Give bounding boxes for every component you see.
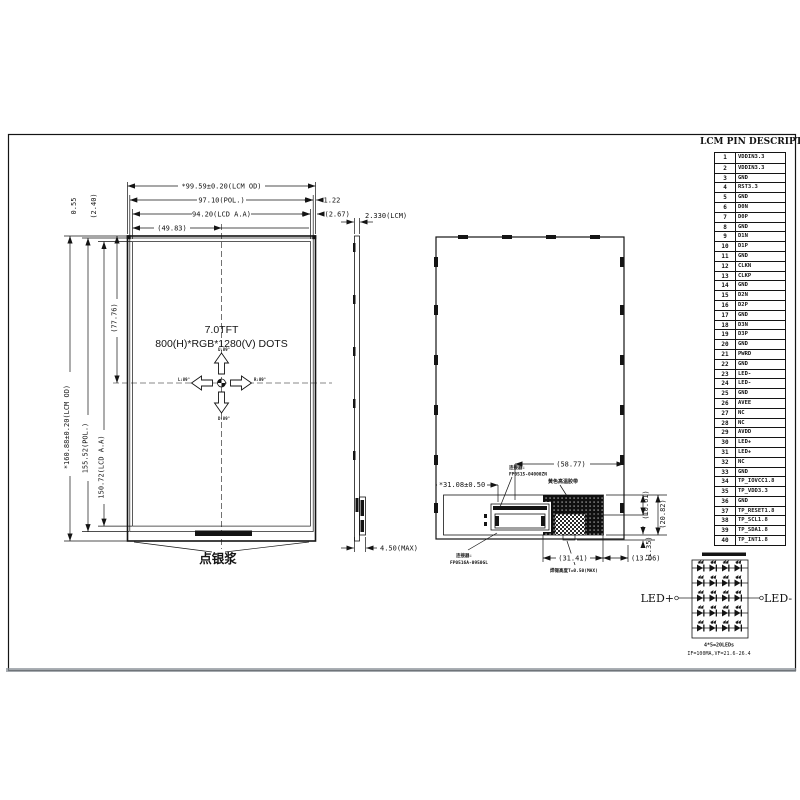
- pin-row: 25GND: [715, 388, 785, 398]
- left-arrow-icon: [192, 376, 213, 390]
- pin-number: 16: [715, 301, 736, 310]
- pin-number: 32: [715, 458, 736, 467]
- pin-name: CLKN: [736, 262, 785, 271]
- pin-row: 32NC: [715, 457, 785, 467]
- pin-number: 5: [715, 193, 736, 202]
- dim-height-aa: 150.72(LCD A.A): [98, 435, 106, 498]
- led-icon: [697, 575, 705, 586]
- pin-name: D3P: [736, 330, 785, 339]
- led-icon: [697, 605, 705, 616]
- pin-name: D2P: [736, 301, 785, 310]
- led-grid: [692, 560, 748, 631]
- pin-row: 4RST3.3: [715, 182, 785, 192]
- leader-line: [560, 485, 567, 496]
- panel-size-label: 7.0TFT: [205, 324, 239, 336]
- led-icon: [735, 605, 743, 616]
- led-icon: [697, 590, 705, 601]
- pin-name: LED+: [736, 448, 785, 457]
- pin-number: 36: [715, 497, 736, 506]
- pin-row: 6D0N: [715, 202, 785, 212]
- pin-name: D1N: [736, 232, 785, 241]
- dim-max-thickness: 4.50(MAX): [380, 545, 418, 553]
- connector-top-label: 连接器:: [509, 464, 525, 471]
- pin-number: 27: [715, 409, 736, 418]
- pin-number: 30: [715, 438, 736, 447]
- led-icon: [710, 605, 718, 616]
- pin-row: 1VDDIN3.3: [715, 153, 785, 163]
- dim-top-aa-gap: (2.40): [90, 193, 98, 218]
- pin-row: 2VDDIN3.3: [715, 163, 785, 173]
- led-icon: [710, 620, 718, 631]
- pin-row: 23LED-: [715, 369, 785, 379]
- pin-row: 36GND: [715, 496, 785, 506]
- leader-line: [468, 533, 497, 550]
- pin-name: D2N: [736, 291, 785, 300]
- pin-name: TP_SDA1.8: [736, 526, 785, 535]
- pin-name: TP_INT1.8: [736, 536, 785, 545]
- led-icon: [735, 590, 743, 601]
- pin-number: 3: [715, 174, 736, 183]
- pin-row: 8GND: [715, 222, 785, 232]
- pin-row: 24LED-: [715, 378, 785, 388]
- pin-row: 37TP_RESET1.8: [715, 506, 785, 516]
- pin-number: 8: [715, 223, 736, 232]
- pin-number: 19: [715, 330, 736, 339]
- solder-height-label: 焊锡高度T=0.50(MAX): [550, 567, 598, 574]
- pin-name: GND: [736, 311, 785, 320]
- pin-row: 11GND: [715, 251, 785, 261]
- pin-number: 26: [715, 399, 736, 408]
- pin-row: 27NC: [715, 408, 785, 418]
- pin-number: 29: [715, 428, 736, 437]
- pin-row: 22GND: [715, 359, 785, 369]
- led-icon: [722, 590, 730, 601]
- pin-row: 21PWRD: [715, 349, 785, 359]
- pin-name: GND: [736, 360, 785, 369]
- connector-top-part: FP0515-04000ZN: [509, 472, 547, 478]
- pin-number: 2: [715, 164, 736, 173]
- sheet-bottom-band: [6, 668, 796, 672]
- pin-name: GND: [736, 252, 785, 261]
- led-count-label: 4*5=20LEDs: [704, 643, 734, 649]
- dim-width-od: *99.59±0.20(LCM OD): [181, 183, 261, 191]
- pin-name: TP_IOVCC1.8: [736, 477, 785, 486]
- led-icon: [697, 560, 705, 571]
- dim-10-61: (10.61): [642, 490, 650, 520]
- led-icon: [735, 575, 743, 586]
- led-icon: [710, 560, 718, 571]
- pin-row: 31LED+: [715, 447, 785, 457]
- pin-row: 19D3P: [715, 329, 785, 339]
- pin-name: AVEE: [736, 399, 785, 408]
- pin-number: 13: [715, 272, 736, 281]
- side-profile: [355, 236, 360, 541]
- resolution-label: 800(H)*RGB*1280(V) DOTS: [155, 338, 287, 350]
- led-icon: [722, 620, 730, 631]
- angle-down-label: D:89°: [218, 416, 230, 421]
- right-arrow-icon: [231, 376, 252, 390]
- pin-number: 21: [715, 350, 736, 359]
- pin-name: GND: [736, 193, 785, 202]
- pin-name: NC: [736, 409, 785, 418]
- pin-number: 1: [715, 153, 736, 163]
- led-plus-terminal-label: LED+: [641, 592, 674, 605]
- pin-row: 30LED+: [715, 437, 785, 447]
- dim-fpc-offset: (58.77): [556, 461, 586, 469]
- led-icon: [722, 575, 730, 586]
- pin-row: 33GND: [715, 467, 785, 477]
- drawing-svg: U:89° D:89° L:89° R:89° 7.0TFT 800(H)*RG…: [0, 0, 800, 800]
- touch-fpc-pad: [555, 514, 585, 535]
- dim-13-06: (13.06): [631, 555, 661, 563]
- datasheet-canvas: U:89° D:89° L:89° R:89° 7.0TFT 800(H)*RG…: [0, 0, 800, 800]
- pin-name: GND: [736, 281, 785, 290]
- pin-name: NC: [736, 419, 785, 428]
- pin-number: 34: [715, 477, 736, 486]
- up-arrow-icon: [215, 353, 229, 374]
- pin-number: 39: [715, 526, 736, 535]
- pin-name: D0N: [736, 203, 785, 212]
- angle-left-label: L:89°: [178, 377, 190, 382]
- dim-height-od: *160.88±0.20(LCM OD): [63, 385, 71, 469]
- pin-number: 12: [715, 262, 736, 271]
- pin-row: 3GND: [715, 173, 785, 183]
- pin-name: GND: [736, 497, 785, 506]
- pin-number: 18: [715, 321, 736, 330]
- pin-number: 14: [715, 281, 736, 290]
- led-icon: [735, 560, 743, 571]
- pin-name: D0P: [736, 213, 785, 222]
- pin-row: 13CLKP: [715, 271, 785, 281]
- pin-row: 39TP_SDA1.8: [715, 525, 785, 535]
- leader-line: [225, 542, 309, 552]
- pin-number: 22: [715, 360, 736, 369]
- dim-20-82: (20.82): [659, 499, 667, 529]
- pin-number: 7: [715, 213, 736, 222]
- back-outline: [436, 237, 624, 539]
- led-icon: [697, 620, 705, 631]
- pin-number: 17: [715, 311, 736, 320]
- led-minus-terminal-label: LED-: [764, 592, 792, 605]
- pin-row: 34TP_IOVCC1.8: [715, 476, 785, 486]
- led-icon: [710, 575, 718, 586]
- dim-width-half: (49.83): [157, 225, 187, 233]
- led-spec-label: IF=100MA,VF=21.6-26.4: [687, 651, 750, 657]
- dim-thickness: 2.330(LCM): [365, 212, 407, 220]
- dim-height-pol: 155.52(POL.): [82, 423, 90, 474]
- pin-row: 16D2P: [715, 300, 785, 310]
- pin-row: 28NC: [715, 418, 785, 428]
- center-mark-quadrant: [218, 379, 222, 383]
- pin-table-body: 1VDDIN3.32VDDIN3.33GND4RST3.35GND6D0N7D0…: [715, 153, 785, 545]
- pin-name: GND: [736, 389, 785, 398]
- pin-row: 5GND: [715, 192, 785, 202]
- dim-31-41: (31.41): [558, 555, 588, 563]
- viewing-direction-symbol: U:89° D:89° L:89° R:89°: [178, 347, 266, 421]
- down-arrow-icon: [215, 392, 229, 413]
- side-view: 2.330(LCM) 4.50(MAX): [341, 212, 418, 553]
- pin-number: 10: [715, 242, 736, 251]
- pin-name: D3N: [736, 321, 785, 330]
- pin-row: 26AVEE: [715, 398, 785, 408]
- pin-row: 29AVDD: [715, 427, 785, 437]
- pin-row: 38TP_SCL1.8: [715, 515, 785, 525]
- pin-name: PWRD: [736, 350, 785, 359]
- pin-number: 6: [715, 203, 736, 212]
- back-view: (58.77) *31.08±0.50 连接器: FP0515-04000ZN …: [434, 235, 667, 574]
- tape-label: 黄色高温胶带: [548, 478, 578, 485]
- front-view: U:89° D:89° L:89° R:89° 7.0TFT 800(H)*RG…: [63, 182, 350, 566]
- led-icon: [710, 590, 718, 601]
- pin-name: TP_SCL1.8: [736, 516, 785, 525]
- led-circuit-diagram: LED+ LED- 4*5=20LEDs IF=100MA,VF=21.6-26…: [641, 553, 793, 658]
- pin-number: 38: [715, 516, 736, 525]
- pin-number: 23: [715, 370, 736, 379]
- dim-right-aa-gap: (2.67): [325, 211, 350, 219]
- silver-paste-label: 点银浆: [199, 551, 237, 566]
- connector-bottom-part: FP0516A-0950GL: [450, 560, 488, 566]
- connector: [484, 502, 551, 532]
- pin-number: 9: [715, 232, 736, 241]
- pin-number: 37: [715, 507, 736, 516]
- pin-number: 33: [715, 468, 736, 477]
- dim-fpc-width: *31.08±0.50: [439, 481, 485, 489]
- pin-number: 11: [715, 252, 736, 261]
- pin-name: AVDD: [736, 428, 785, 437]
- led-top-bar: [702, 553, 746, 557]
- pin-number: 35: [715, 487, 736, 496]
- pin-row: 12CLKN: [715, 261, 785, 271]
- pin-name: GND: [736, 468, 785, 477]
- dim-right-pol-gap: 1.22: [324, 197, 341, 205]
- pin-number: 4: [715, 183, 736, 192]
- pin-row: 14GND: [715, 280, 785, 290]
- pin-row: 10D1P: [715, 241, 785, 251]
- pin-table-title: LCM PIN DESCRIPTION: [700, 137, 796, 147]
- pin-number: 15: [715, 291, 736, 300]
- dim-height-half: (77.76): [111, 303, 119, 333]
- terminal-node-icon: [760, 596, 764, 600]
- pin-name: LED+: [736, 438, 785, 447]
- pin-name: CLKP: [736, 272, 785, 281]
- pin-number: 20: [715, 340, 736, 349]
- pin-row: 40TP_INT1.8: [715, 535, 785, 545]
- pin-row: 15D2N: [715, 290, 785, 300]
- pin-name: LED-: [736, 379, 785, 388]
- pin-name: VDDIN3.3: [736, 164, 785, 173]
- pin-number: 25: [715, 389, 736, 398]
- fpc-bond-bar: [195, 531, 252, 537]
- pin-row: 17GND: [715, 310, 785, 320]
- center-mark-quadrant: [222, 383, 226, 387]
- terminal-node-icon: [675, 596, 679, 600]
- leader-line: [134, 542, 212, 552]
- pin-row: 7D0P: [715, 212, 785, 222]
- pin-row: 20GND: [715, 339, 785, 349]
- dim-width-aa: 94.20(LCD A.A): [192, 211, 251, 219]
- led-icon: [722, 605, 730, 616]
- led-icon: [722, 560, 730, 571]
- pin-table: 1VDDIN3.32VDDIN3.33GND4RST3.35GND6D0N7D0…: [714, 152, 786, 546]
- pin-number: 24: [715, 379, 736, 388]
- led-icon: [735, 620, 743, 631]
- pin-name: VDDIN3.3: [736, 153, 785, 163]
- pin-name: TP_VDD3.3: [736, 487, 785, 496]
- pin-name: LED-: [736, 370, 785, 379]
- pin-number: 28: [715, 419, 736, 428]
- pin-name: D1P: [736, 242, 785, 251]
- pin-row: 18D3N: [715, 320, 785, 330]
- angle-right-label: R:89°: [254, 377, 266, 382]
- pin-name: GND: [736, 340, 785, 349]
- connector-bottom-label: 连接器:: [456, 552, 472, 559]
- pin-row: 35TP_VDD3.3: [715, 486, 785, 496]
- dim-top-pol-gap: 0.55: [70, 198, 78, 215]
- pin-name: GND: [736, 223, 785, 232]
- pin-name: TP_RESET1.8: [736, 507, 785, 516]
- pin-number: 31: [715, 448, 736, 457]
- dim-width-pol: 97.10(POL.): [198, 197, 244, 205]
- pin-name: NC: [736, 458, 785, 467]
- pin-row: 9D1N: [715, 231, 785, 241]
- pin-name: RST3.3: [736, 183, 785, 192]
- pin-number: 40: [715, 536, 736, 545]
- pin-name: GND: [736, 174, 785, 183]
